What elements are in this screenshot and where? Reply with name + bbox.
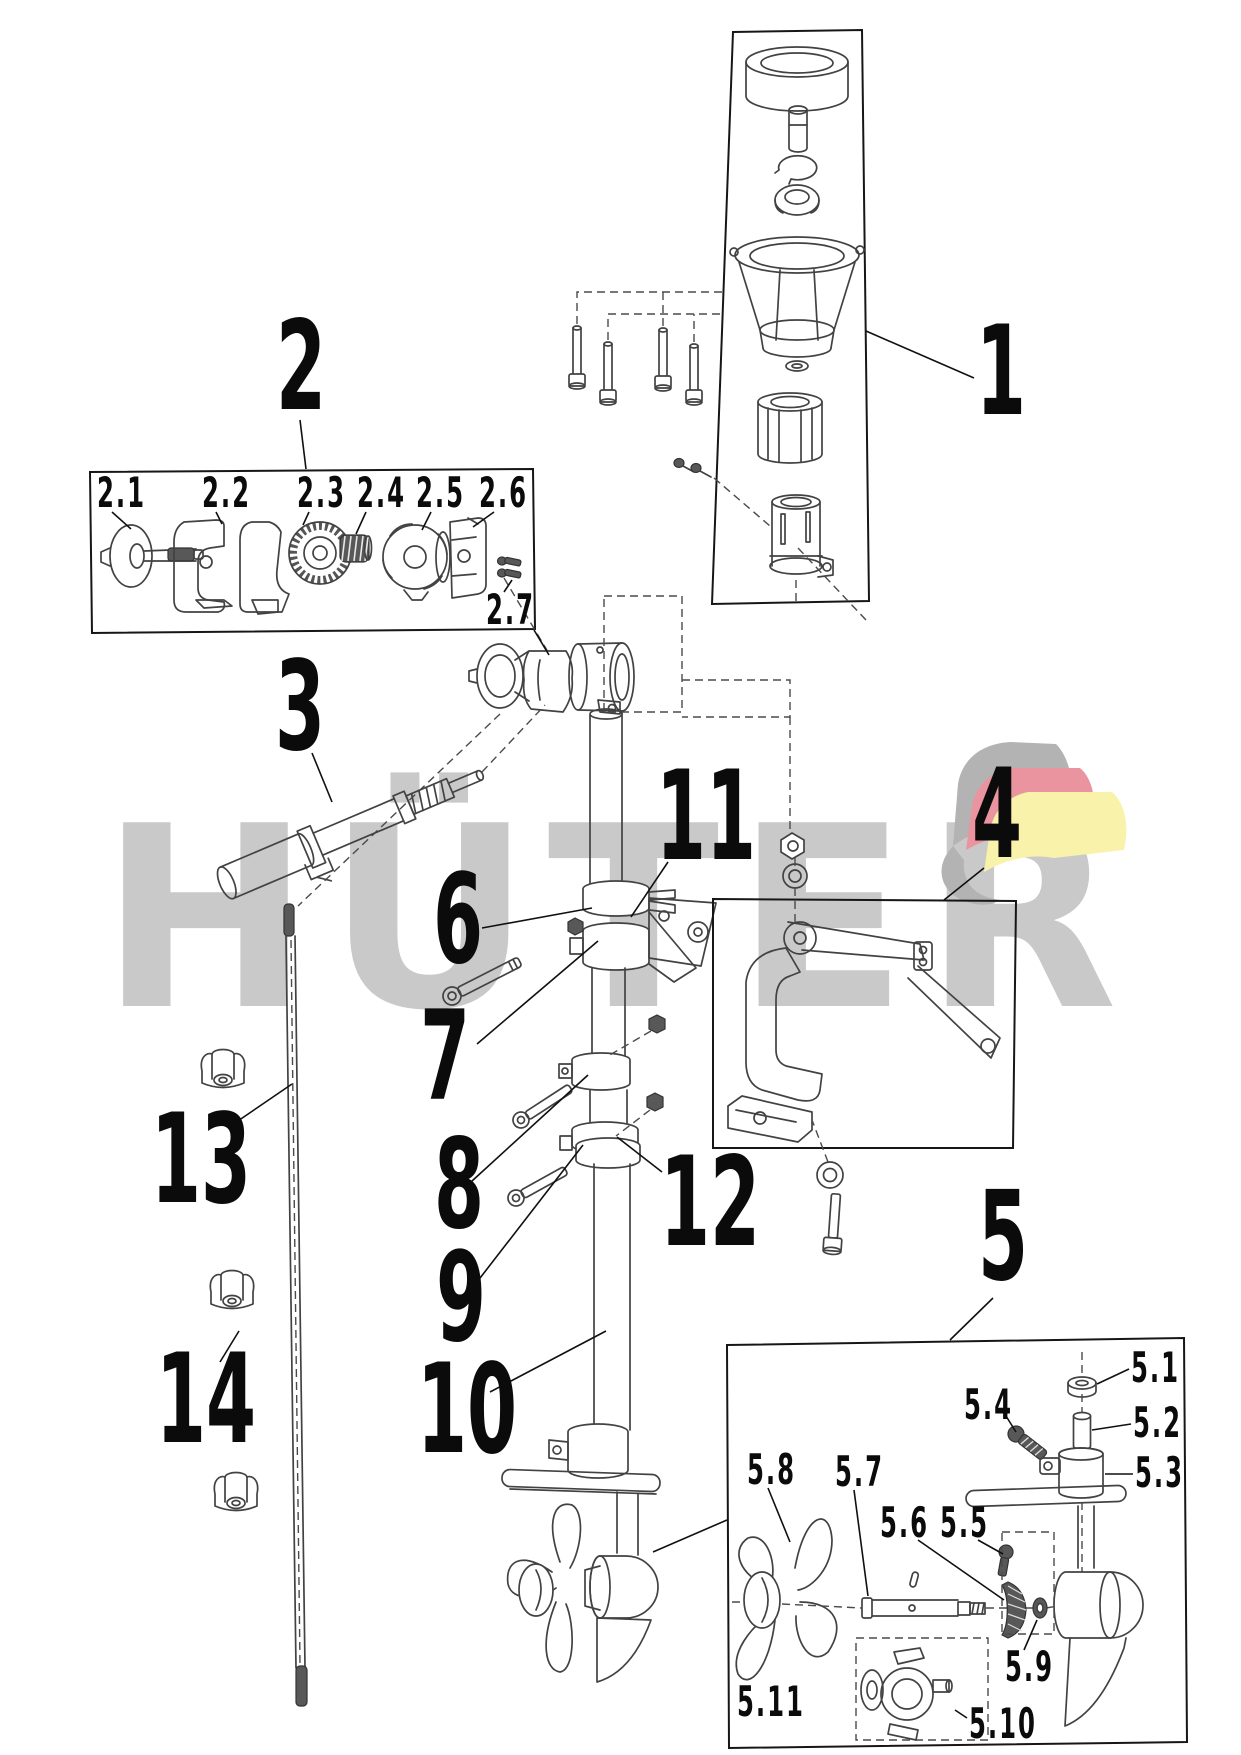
adjustment-rod-drawing bbox=[284, 904, 307, 1706]
callout-5-8: 5.8 bbox=[747, 1449, 796, 1491]
bracket-bolt-drawing bbox=[812, 1120, 845, 1255]
lower-collar-drawing bbox=[583, 923, 649, 970]
gear-screw-drawing bbox=[995, 1544, 1014, 1577]
callout-3: 3 bbox=[275, 645, 325, 769]
callout-5-7: 5.7 bbox=[835, 1451, 884, 1493]
motor-pod-drawing bbox=[585, 1556, 658, 1618]
middle-clamp-drawing bbox=[572, 1053, 630, 1090]
callout-2-5: 2.5 bbox=[416, 472, 465, 514]
bracket-body-drawing bbox=[728, 922, 1000, 1142]
propeller-drawing bbox=[508, 1504, 581, 1672]
callout-5-4: 5.4 bbox=[964, 1384, 1013, 1426]
callout-5: 5 bbox=[978, 1175, 1028, 1299]
callout-13: 13 bbox=[151, 1098, 251, 1222]
pivot-washer-drawing bbox=[783, 864, 807, 888]
callout-6: 6 bbox=[433, 858, 483, 982]
callout-2-2: 2.2 bbox=[202, 472, 251, 514]
callout-5-5: 5.5 bbox=[940, 1502, 989, 1544]
upper-collar-drawing bbox=[583, 881, 649, 916]
callout-5-3: 5.3 bbox=[1135, 1452, 1184, 1494]
callout-10: 10 bbox=[417, 1348, 517, 1472]
prop-cap-drawing bbox=[746, 47, 848, 152]
callout-2-4: 2.4 bbox=[357, 472, 406, 514]
lower-clamp-drawing bbox=[549, 1424, 628, 1478]
mount-bolts-drawing bbox=[569, 292, 724, 405]
end-cap-drawing bbox=[450, 518, 486, 598]
exploded-diagram bbox=[0, 0, 1241, 1755]
parts-diagram-page: HÜTER bbox=[0, 0, 1241, 1755]
propeller5-drawing bbox=[736, 1519, 836, 1680]
hex-nut-drawing bbox=[568, 918, 583, 935]
spring-drawing bbox=[340, 535, 372, 562]
spacer-cylinder-drawing bbox=[1074, 1413, 1091, 1450]
circlip-drawing bbox=[775, 156, 817, 184]
spacer-ring-drawing bbox=[786, 361, 808, 371]
gear-cover-drawing bbox=[383, 524, 450, 600]
callout-2-1: 2.1 bbox=[97, 472, 146, 514]
callout-5-11: 5.11 bbox=[737, 1681, 805, 1723]
callout-5-10: 5.10 bbox=[969, 1703, 1037, 1745]
motor-housing-drawing bbox=[730, 237, 864, 357]
bearing-drawing bbox=[775, 185, 819, 215]
callout-7: 7 bbox=[420, 995, 470, 1119]
gear-housing-drawing bbox=[240, 522, 351, 614]
callout-2: 2 bbox=[276, 305, 326, 429]
pivot-nut-drawing bbox=[781, 833, 804, 859]
clamp-sleeve-drawing bbox=[770, 495, 833, 577]
skeg-drawing bbox=[597, 1618, 651, 1682]
motor-head-exploded bbox=[674, 30, 869, 620]
skeg5-drawing bbox=[1065, 1638, 1126, 1726]
callout-2-6: 2.6 bbox=[479, 472, 528, 514]
bevel-gear-drawing bbox=[1002, 1582, 1026, 1638]
callout-2-7: 2.7 bbox=[486, 589, 535, 631]
shaft-disc-drawing bbox=[101, 525, 203, 587]
kit-screws-drawing bbox=[498, 557, 522, 578]
transom-bracket-exploded bbox=[713, 833, 1016, 1148]
small-screws-drawing bbox=[674, 459, 711, 478]
callout-1: 1 bbox=[976, 310, 1026, 434]
callout-5-2: 5.2 bbox=[1133, 1402, 1182, 1444]
callout-12: 12 bbox=[660, 1141, 760, 1265]
callout-5-9: 5.9 bbox=[1005, 1646, 1054, 1688]
pod5-drawing bbox=[1054, 1572, 1143, 1726]
callout-11: 11 bbox=[656, 755, 756, 879]
mount-bracket-drawing bbox=[174, 520, 232, 612]
prop-shaft-drawing bbox=[862, 1571, 985, 1618]
shaft-collar-drawing bbox=[1040, 1448, 1103, 1498]
callout-5-1: 5.1 bbox=[1131, 1347, 1180, 1389]
callout-2-3: 2.3 bbox=[297, 472, 346, 514]
swivel-assembled-drawing bbox=[469, 643, 634, 714]
splined-sleeve-drawing bbox=[758, 393, 822, 463]
gear-nut-drawing bbox=[1033, 1598, 1047, 1618]
callout-5-6: 5.6 bbox=[880, 1502, 929, 1544]
callout-14: 14 bbox=[156, 1338, 256, 1462]
callout-4: 4 bbox=[972, 753, 1022, 877]
